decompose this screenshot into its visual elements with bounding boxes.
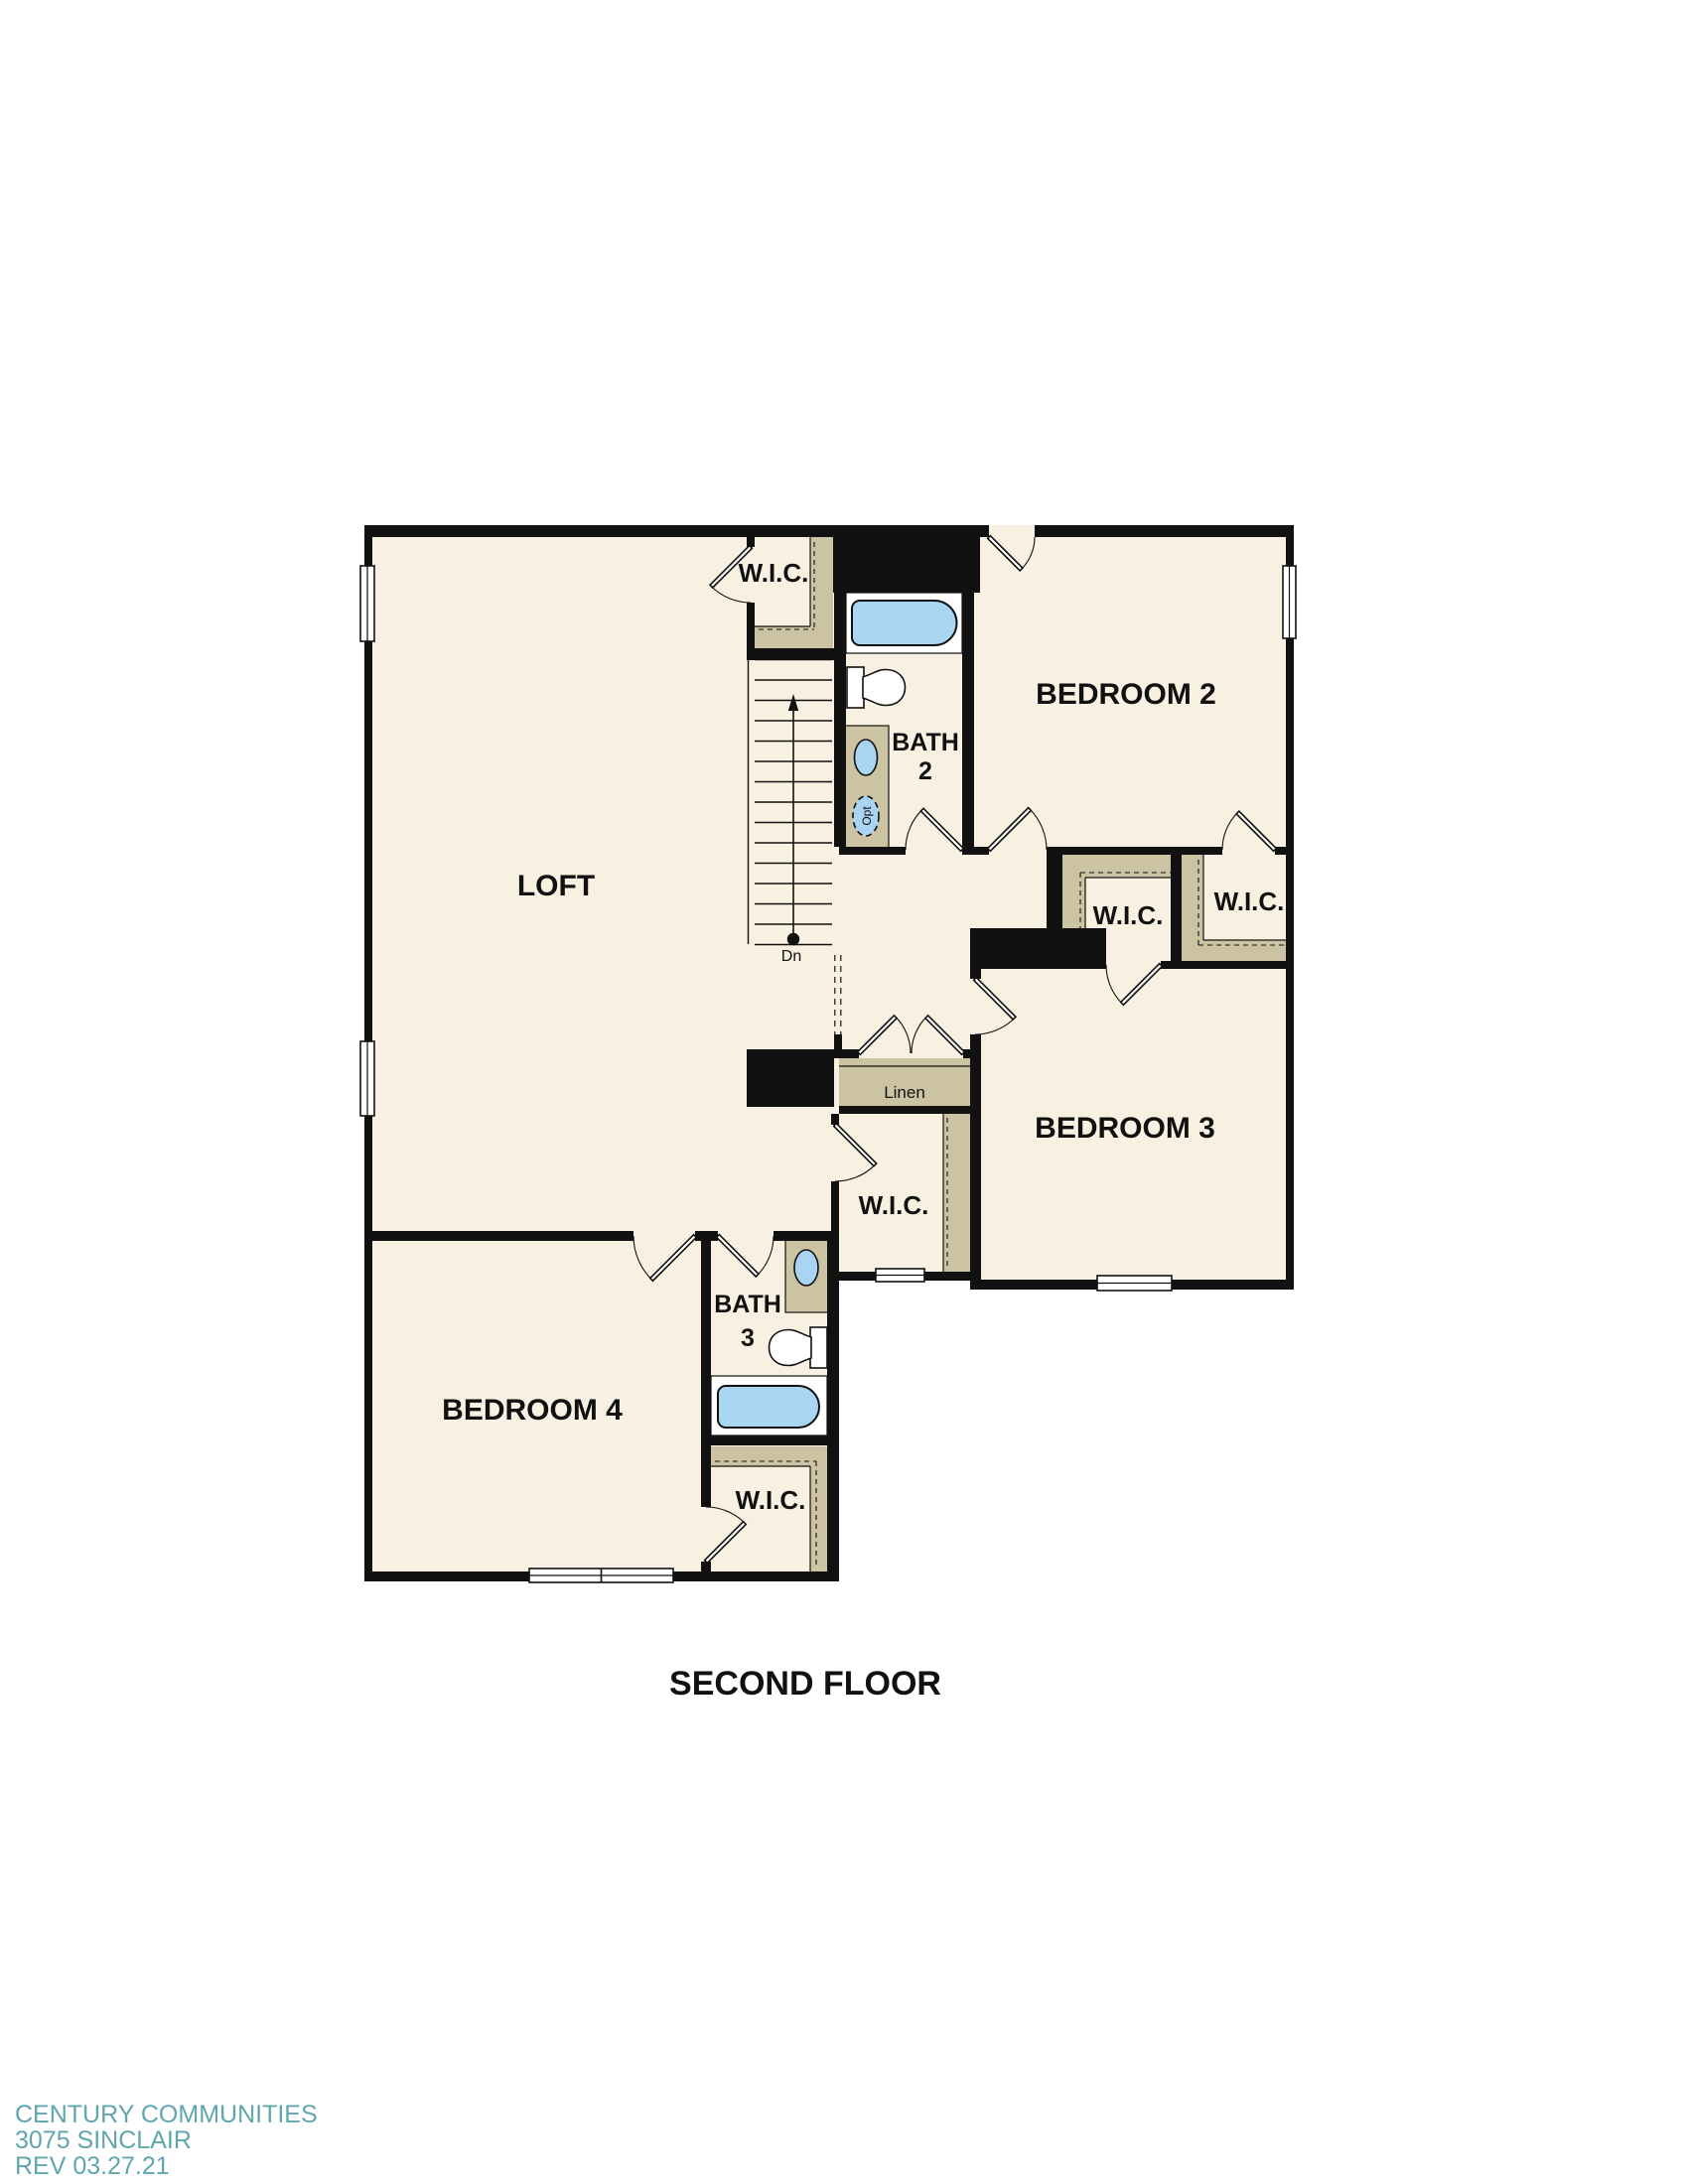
svg-text:Dn: Dn [781, 948, 801, 965]
svg-text:W.I.C.: W.I.C. [1093, 900, 1164, 930]
svg-text:BEDROOM 3: BEDROOM 3 [1035, 1112, 1215, 1145]
svg-text:3075 SINCLAIR: 3075 SINCLAIR [15, 2126, 192, 2154]
svg-text:W.I.C.: W.I.C. [859, 1190, 929, 1220]
svg-text:3: 3 [741, 1324, 755, 1352]
svg-text:2: 2 [918, 757, 932, 785]
svg-text:W.I.C.: W.I.C. [739, 558, 809, 588]
svg-text:SECOND FLOOR: SECOND FLOOR [669, 1665, 941, 1703]
svg-text:W.I.C.: W.I.C. [736, 1485, 806, 1515]
svg-text:W.I.C.: W.I.C. [1214, 887, 1285, 916]
svg-text:Linen: Linen [884, 1083, 925, 1102]
svg-text:Opt: Opt [860, 806, 874, 826]
svg-text:CENTURY COMMUNITIES: CENTURY COMMUNITIES [15, 2101, 318, 2128]
svg-text:LOFT: LOFT [517, 870, 595, 902]
svg-text:BATH: BATH [892, 729, 959, 756]
svg-text:BEDROOM 4: BEDROOM 4 [442, 1394, 623, 1427]
svg-text:BATH: BATH [714, 1291, 781, 1318]
svg-text:REV 03.27.21: REV 03.27.21 [15, 2152, 170, 2180]
svg-text:BEDROOM 2: BEDROOM 2 [1036, 678, 1216, 711]
